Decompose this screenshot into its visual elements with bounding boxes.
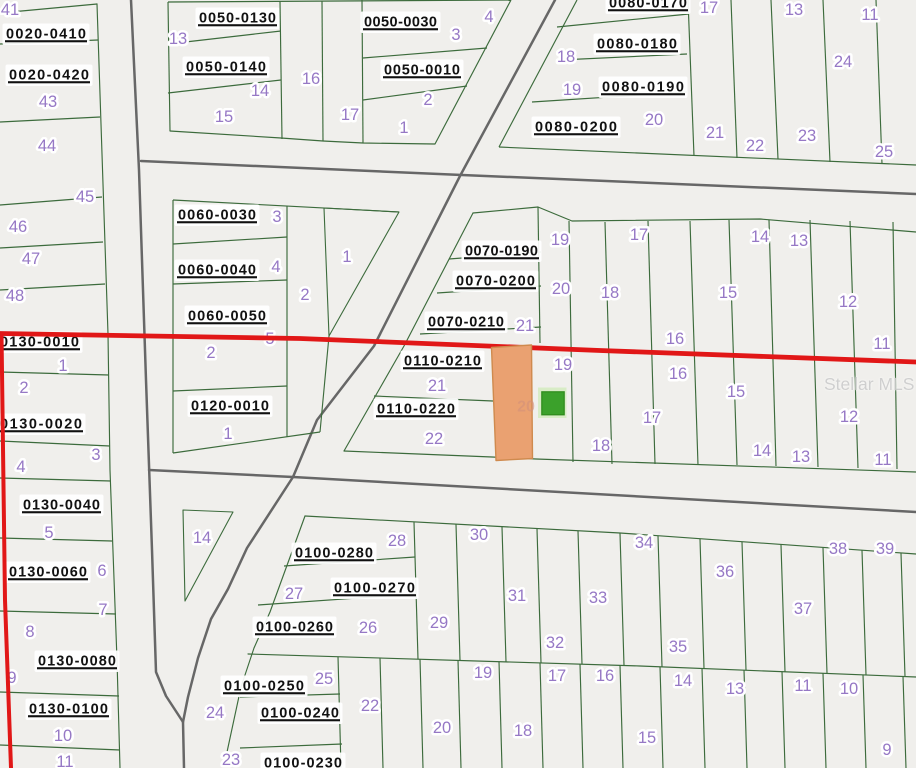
svg-text:35: 35 xyxy=(669,638,687,656)
svg-text:41: 41 xyxy=(1,1,19,19)
svg-text:21: 21 xyxy=(428,377,446,395)
svg-text:15: 15 xyxy=(215,108,233,126)
svg-text:0100-0270: 0100-0270 xyxy=(334,580,415,596)
svg-text:14: 14 xyxy=(193,529,211,547)
svg-text:23: 23 xyxy=(798,127,816,145)
svg-text:48: 48 xyxy=(6,287,24,305)
svg-text:25: 25 xyxy=(315,670,333,688)
svg-text:43: 43 xyxy=(39,93,57,111)
svg-text:19: 19 xyxy=(474,664,492,682)
svg-text:0130-0040: 0130-0040 xyxy=(23,497,100,513)
svg-text:0110-0220: 0110-0220 xyxy=(377,401,455,417)
svg-text:17: 17 xyxy=(630,226,648,244)
svg-text:0050-0130: 0050-0130 xyxy=(199,10,276,26)
svg-text:16: 16 xyxy=(302,70,320,88)
svg-text:1: 1 xyxy=(223,425,232,443)
svg-text:Stellar MLS: Stellar MLS xyxy=(824,374,914,394)
svg-text:15: 15 xyxy=(727,383,745,401)
svg-text:0080-0200: 0080-0200 xyxy=(535,119,617,135)
svg-text:36: 36 xyxy=(716,563,734,581)
svg-text:22: 22 xyxy=(746,137,764,155)
svg-text:12: 12 xyxy=(839,293,857,311)
svg-text:11: 11 xyxy=(873,335,890,353)
svg-text:8: 8 xyxy=(25,623,34,641)
svg-text:3: 3 xyxy=(451,26,460,44)
svg-text:13: 13 xyxy=(785,1,803,19)
svg-text:0050-0030: 0050-0030 xyxy=(364,14,437,30)
svg-text:13: 13 xyxy=(790,232,808,250)
svg-text:15: 15 xyxy=(638,729,656,747)
svg-text:0100-0260: 0100-0260 xyxy=(256,619,333,635)
svg-text:10: 10 xyxy=(54,727,72,745)
svg-text:20: 20 xyxy=(433,719,451,737)
svg-text:16: 16 xyxy=(596,667,614,685)
svg-text:3: 3 xyxy=(272,208,281,226)
svg-text:37: 37 xyxy=(794,600,812,618)
svg-text:0100-0250: 0100-0250 xyxy=(224,678,304,694)
svg-text:4: 4 xyxy=(484,8,493,26)
svg-text:31: 31 xyxy=(508,587,526,605)
svg-text:18: 18 xyxy=(601,284,619,302)
svg-text:14: 14 xyxy=(751,228,769,246)
svg-text:19: 19 xyxy=(563,81,581,99)
svg-text:0020-0410: 0020-0410 xyxy=(6,26,86,42)
svg-text:32: 32 xyxy=(546,634,564,652)
svg-text:18: 18 xyxy=(557,48,575,66)
svg-text:0050-0140: 0050-0140 xyxy=(186,59,266,75)
svg-text:0120-0010: 0120-0010 xyxy=(191,398,269,414)
svg-text:0070-0200: 0070-0200 xyxy=(456,273,535,289)
svg-text:1: 1 xyxy=(342,248,351,266)
svg-text:16: 16 xyxy=(669,365,687,383)
svg-text:17: 17 xyxy=(700,0,718,17)
svg-text:12: 12 xyxy=(840,408,858,426)
svg-text:39: 39 xyxy=(876,540,894,558)
svg-text:6: 6 xyxy=(97,562,106,580)
svg-text:23: 23 xyxy=(222,751,240,768)
svg-text:0080-0190: 0080-0190 xyxy=(602,79,684,95)
svg-text:17: 17 xyxy=(643,409,661,427)
svg-text:10: 10 xyxy=(840,680,858,698)
svg-text:2: 2 xyxy=(423,91,432,109)
svg-text:17: 17 xyxy=(548,667,566,685)
svg-text:14: 14 xyxy=(674,672,692,690)
svg-text:1: 1 xyxy=(58,357,67,375)
svg-text:22: 22 xyxy=(425,430,443,448)
svg-text:34: 34 xyxy=(635,534,653,552)
svg-text:44: 44 xyxy=(38,137,56,155)
svg-text:7: 7 xyxy=(98,601,107,619)
svg-text:19: 19 xyxy=(554,356,572,374)
svg-text:20: 20 xyxy=(517,399,535,416)
svg-text:0020-0420: 0020-0420 xyxy=(9,67,89,83)
svg-text:26: 26 xyxy=(359,619,377,637)
svg-text:47: 47 xyxy=(22,250,40,268)
svg-text:11: 11 xyxy=(794,677,811,695)
svg-text:0110-0210: 0110-0210 xyxy=(404,353,481,369)
svg-text:20: 20 xyxy=(552,280,570,298)
svg-text:24: 24 xyxy=(206,704,224,722)
svg-text:9: 9 xyxy=(882,741,891,759)
svg-text:11: 11 xyxy=(874,451,891,469)
svg-text:16: 16 xyxy=(666,330,684,348)
svg-text:0060-0030: 0060-0030 xyxy=(178,207,256,223)
svg-text:15: 15 xyxy=(719,284,737,302)
svg-text:38: 38 xyxy=(829,540,847,558)
svg-text:13: 13 xyxy=(169,30,187,48)
svg-text:17: 17 xyxy=(341,106,359,124)
svg-text:0130-0080: 0130-0080 xyxy=(38,653,116,669)
svg-text:2: 2 xyxy=(19,379,28,397)
svg-text:0100-0240: 0100-0240 xyxy=(261,705,339,721)
svg-text:2: 2 xyxy=(300,286,309,304)
svg-text:5: 5 xyxy=(44,524,53,542)
svg-text:4: 4 xyxy=(16,458,25,476)
svg-text:0060-0050: 0060-0050 xyxy=(188,308,266,324)
svg-text:45: 45 xyxy=(76,188,94,206)
svg-text:46: 46 xyxy=(9,218,27,236)
svg-text:18: 18 xyxy=(514,722,532,740)
svg-text:13: 13 xyxy=(792,448,810,466)
svg-text:30: 30 xyxy=(470,526,488,544)
svg-text:0100-0230: 0100-0230 xyxy=(264,755,342,768)
svg-text:2: 2 xyxy=(206,344,215,362)
svg-text:14: 14 xyxy=(251,82,269,100)
svg-text:0070-0190: 0070-0190 xyxy=(465,243,538,259)
svg-text:25: 25 xyxy=(875,143,893,161)
svg-text:22: 22 xyxy=(361,697,379,715)
svg-text:0060-0040: 0060-0040 xyxy=(178,262,256,278)
svg-text:27: 27 xyxy=(285,585,303,603)
svg-text:0130-0020: 0130-0020 xyxy=(0,416,82,432)
svg-text:28: 28 xyxy=(388,532,406,550)
svg-text:3: 3 xyxy=(91,446,100,464)
svg-text:24: 24 xyxy=(834,53,852,71)
svg-text:11: 11 xyxy=(861,6,878,24)
svg-text:19: 19 xyxy=(551,231,569,249)
svg-text:21: 21 xyxy=(516,317,534,335)
svg-text:20: 20 xyxy=(645,111,663,129)
svg-text:0070-0210: 0070-0210 xyxy=(428,314,504,330)
svg-text:0050-0010: 0050-0010 xyxy=(384,62,460,78)
svg-text:18: 18 xyxy=(592,437,610,455)
svg-text:0130-0100: 0130-0100 xyxy=(29,701,108,717)
svg-text:4: 4 xyxy=(271,258,280,276)
svg-text:29: 29 xyxy=(430,614,448,632)
svg-text:1: 1 xyxy=(399,119,408,137)
svg-text:0080-0180: 0080-0180 xyxy=(597,36,677,52)
svg-text:0130-0060: 0130-0060 xyxy=(9,564,87,580)
svg-text:33: 33 xyxy=(589,589,607,607)
svg-text:13: 13 xyxy=(726,680,744,698)
svg-text:14: 14 xyxy=(753,442,771,460)
svg-text:21: 21 xyxy=(706,124,724,142)
svg-text:0100-0280: 0100-0280 xyxy=(295,545,373,561)
svg-text:11: 11 xyxy=(56,753,73,768)
